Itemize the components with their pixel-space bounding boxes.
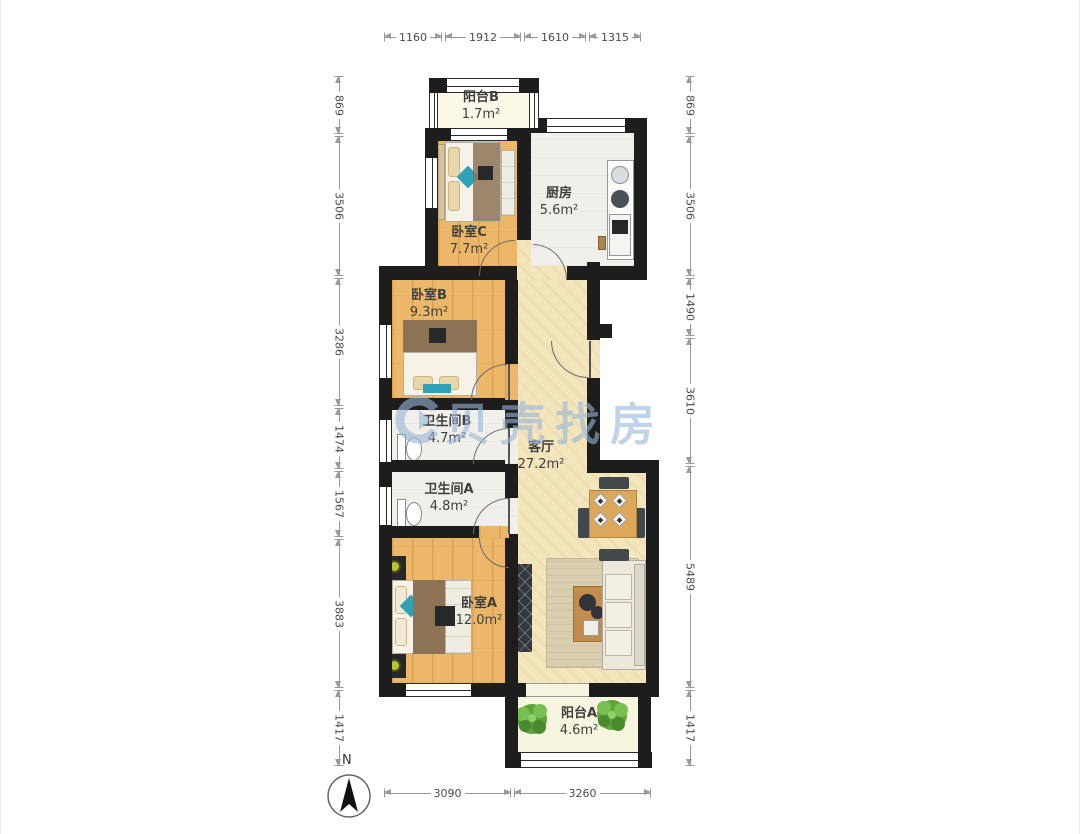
dining-chair	[599, 477, 629, 489]
balcony-a-door-gap	[526, 683, 589, 697]
bedroom-a-window	[406, 683, 471, 697]
tv-stand	[518, 564, 532, 652]
table-tray	[583, 620, 599, 636]
wall	[518, 683, 526, 697]
tv-panel	[429, 328, 446, 343]
wall	[600, 324, 612, 338]
room-label-balcony-b: 阳台B 1.7m²	[433, 90, 529, 123]
pillow	[448, 181, 460, 211]
room-label-bedroom-b: 卧室B 9.3m²	[389, 288, 469, 321]
dimension-bottom-2: 3260	[514, 786, 651, 800]
bedroom-c-balcony-window	[451, 128, 507, 141]
bathroom-b-window	[379, 420, 392, 462]
dimension-top-3: 1610	[524, 30, 586, 44]
wardrobe	[501, 150, 515, 216]
bed-blanket	[473, 143, 500, 221]
dimension-right-5: 5489	[683, 466, 697, 688]
dimension-right-4: 3610	[683, 338, 697, 464]
wall	[634, 118, 647, 280]
wall	[425, 128, 451, 141]
pillow	[395, 618, 407, 646]
dimension-left-4: 1474	[332, 408, 346, 469]
room-label-balcony-a: 阳台A 4.6m²	[539, 706, 619, 739]
dimension-left-2: 3506	[332, 136, 346, 276]
wall	[471, 683, 518, 697]
kitchen-sink	[611, 166, 629, 184]
wall	[646, 460, 659, 697]
room-label-living: 客厅 27.2m²	[501, 440, 581, 473]
dimension-top-1: 1160	[384, 30, 442, 44]
dimension-right-6: 1417	[683, 690, 697, 766]
wall	[379, 683, 406, 697]
dimension-left-6: 3883	[332, 539, 346, 688]
balcony-b-side-window-right	[529, 93, 539, 128]
pillow	[448, 147, 460, 177]
room-label-bathroom-b: 卫生间B 4.7m²	[397, 414, 497, 447]
oven-door	[612, 220, 628, 234]
dining-chair	[599, 549, 629, 561]
wall	[587, 262, 600, 340]
wall	[505, 752, 521, 768]
floor-plan-image: 阳台B 1.7m² 厨房 5.6m² 卧室C 7.7m² 卧室B 9.3m² 卫…	[0, 0, 1080, 834]
dimension-right-1: 869	[683, 76, 697, 134]
sofa-cushion	[605, 630, 632, 656]
wall	[517, 128, 531, 240]
wall	[379, 525, 392, 697]
bedroom-b-window	[379, 325, 392, 378]
tv-panel	[478, 166, 493, 180]
dimension-right-3: 1490	[683, 278, 697, 336]
bathroom-a-door-leaf	[508, 498, 510, 534]
bed-headboard	[438, 144, 445, 220]
dimension-right-2: 3506	[683, 136, 697, 276]
sofa-back	[634, 564, 645, 666]
kitchen-window	[547, 118, 625, 133]
bathroom-a-window	[379, 487, 392, 525]
dimension-top-4: 1315	[589, 30, 641, 44]
bedroom-c-window	[425, 158, 438, 208]
dimension-left-3: 3286	[332, 278, 346, 406]
entry-door-leaf	[589, 341, 591, 378]
sofa-cushion	[605, 574, 632, 600]
dimension-left-1: 869	[332, 76, 346, 134]
stove-burner	[611, 190, 629, 208]
dimension-bottom-1: 3090	[384, 786, 511, 800]
bed-throw	[423, 384, 451, 393]
kitchen-item	[598, 236, 606, 250]
compass-icon	[325, 770, 373, 820]
wall	[587, 378, 600, 460]
dimension-top-2: 1912	[445, 30, 521, 44]
room-label-bedroom-c: 卧室C 7.7m²	[429, 225, 509, 258]
sofa-cushion	[605, 602, 632, 628]
room-label-bedroom-a: 卧室A 12.0m²	[439, 596, 519, 629]
wall	[638, 697, 651, 752]
dimension-left-5: 1567	[332, 471, 346, 537]
wall	[379, 526, 479, 538]
wall	[505, 280, 518, 364]
room-label-bathroom-a: 卫生间A 4.8m²	[399, 482, 499, 515]
room-label-kitchen: 厨房 5.6m²	[519, 186, 599, 219]
bedroom-b-door-leaf	[508, 364, 510, 400]
wall	[567, 266, 647, 280]
compass-north-label: N	[342, 753, 352, 768]
balcony-a-window	[521, 752, 638, 768]
wall	[505, 697, 518, 752]
wall	[638, 752, 652, 768]
